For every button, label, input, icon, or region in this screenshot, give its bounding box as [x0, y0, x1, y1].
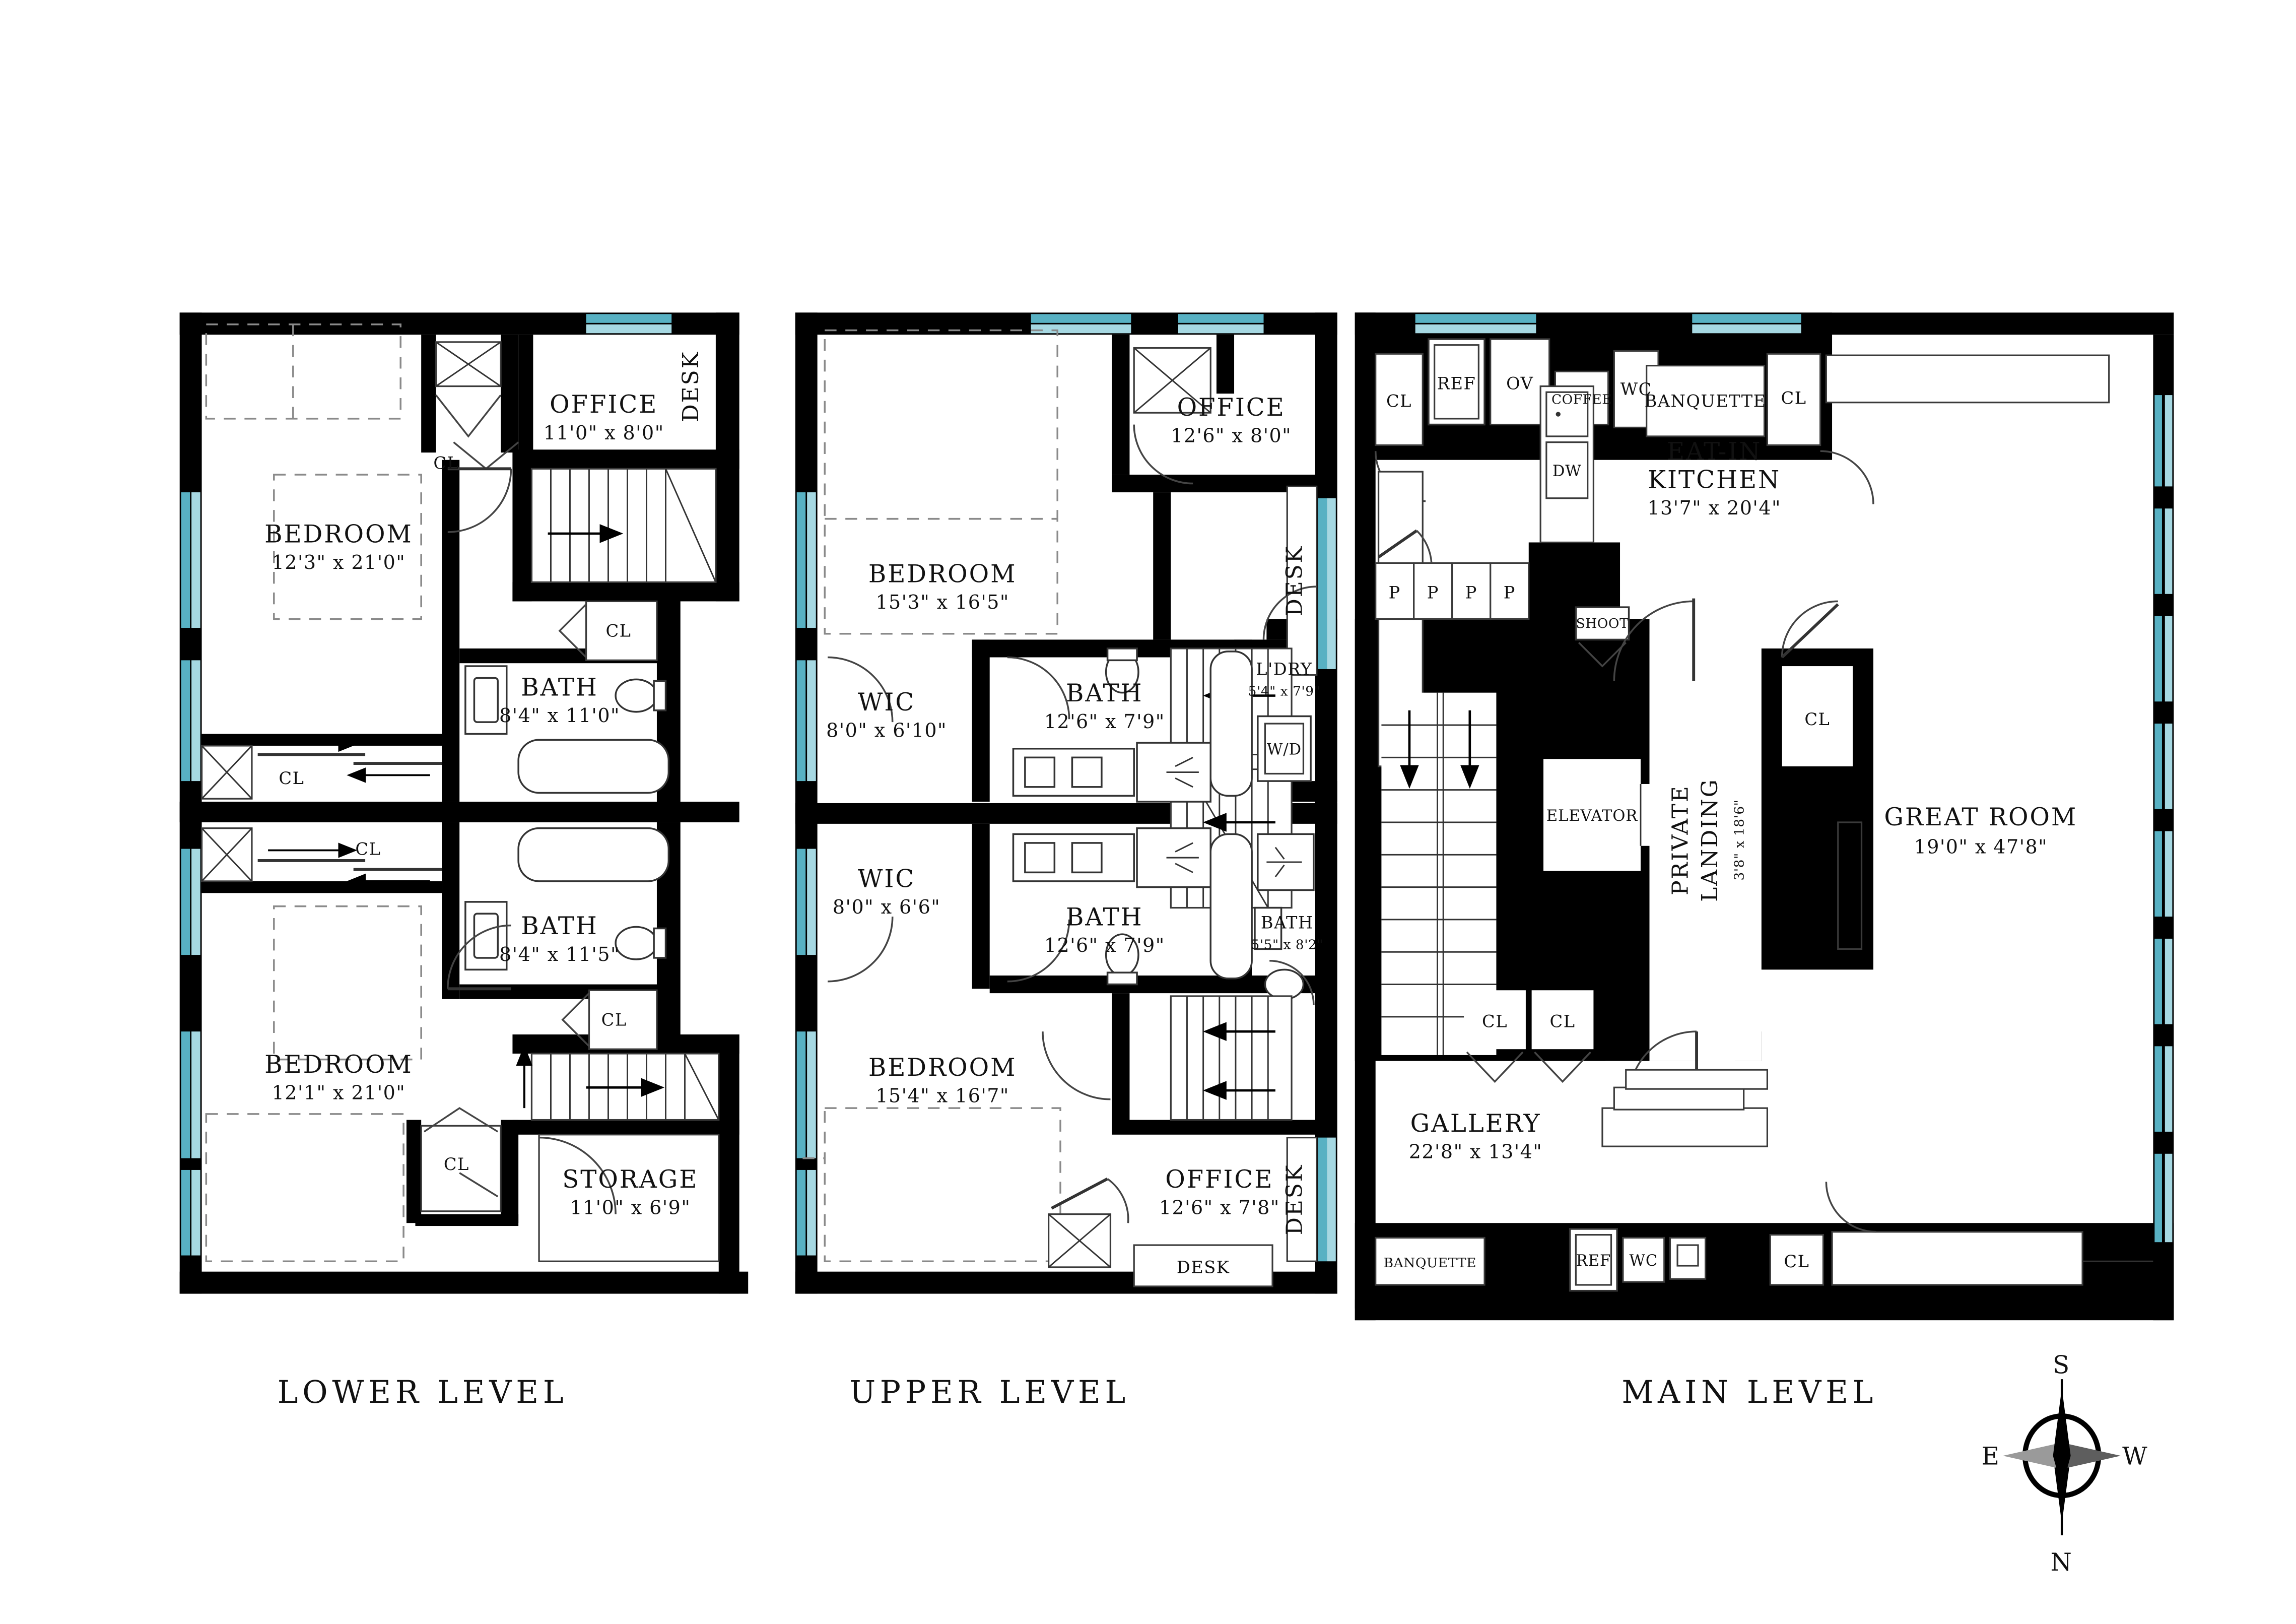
room-label-greatroom: GREAT ROOM: [1884, 803, 2077, 831]
room-dims-office1: 12'6" x 8'0": [1171, 425, 1292, 447]
ref-label: REF: [1437, 373, 1476, 393]
room-label-office2: OFFICE: [1165, 1165, 1273, 1194]
dishwasher-label: DW: [1552, 463, 1582, 480]
plan-upper-level: OFFICE 12'6" x 8'0" DESK BEDROOM 15'3" x…: [795, 312, 1337, 1293]
bed-outline: [206, 324, 421, 619]
door-arc: [828, 917, 893, 982]
pantry-label: P: [1427, 583, 1439, 603]
elevator-label: ELEVATOR: [1546, 807, 1638, 825]
room-dims-bedroom1: 12'3" x 21'0": [272, 551, 406, 573]
closet-label: CL: [444, 1154, 469, 1174]
compass-east: E: [1982, 1443, 2001, 1471]
plan-title-main: MAIN LEVEL: [1622, 1375, 1877, 1410]
oven-label: OV: [1506, 373, 1533, 393]
closet-label: CL: [355, 839, 381, 859]
room-dims-bath2: 12'6" x 7'9": [1044, 934, 1165, 956]
staircase-icon: [524, 1049, 719, 1120]
wc-label: WC: [1629, 1252, 1658, 1270]
room-label-ldry: L'DRY: [1256, 660, 1312, 679]
room-label-bath3: BATH: [1261, 913, 1314, 932]
room-dims-bedroom2: 12'1" x 21'0": [272, 1082, 406, 1104]
pantry-label: P: [1465, 583, 1477, 603]
room-label-storage: STORAGE: [562, 1165, 698, 1194]
room-dims-bath1: 8'4" x 11'0": [499, 704, 620, 727]
room-dims-bedroom2: 15'4" x 16'7": [875, 1084, 1009, 1107]
room-dims-wic1: 8'0" x 6'10": [826, 719, 947, 741]
compass-north: N: [2051, 1548, 2073, 1577]
room-label-bedroom2: BEDROOM: [868, 1054, 1017, 1082]
closet-label: CL: [433, 453, 459, 473]
floor-plan-canvas: BEDROOM 12'3" x 21'0" CL OFFICE 11'0" x …: [0, 0, 2296, 1624]
room-label-office: OFFICE: [550, 391, 658, 419]
closet-label: CL: [279, 768, 304, 788]
room-label-bath1: BATH: [521, 674, 598, 702]
landing-label-1: PRIVATE: [1668, 785, 1694, 895]
plan-title-upper: UPPER LEVEL: [849, 1375, 1130, 1410]
coffee-label: COFFEE: [1551, 393, 1612, 408]
closet-label: CL: [1804, 709, 1830, 729]
closet-label: CL: [1482, 1011, 1508, 1031]
console-table: [1602, 1070, 1767, 1146]
closet-label: CL: [605, 621, 631, 641]
staircase-icon: [531, 469, 715, 582]
x-closet-icon: [436, 342, 501, 436]
compass-rose-icon: S N E W: [1982, 1351, 2149, 1577]
shoot-label: SHOOT: [1576, 616, 1629, 631]
room-label-gallery: GALLERY: [1410, 1110, 1541, 1138]
room-label-bath2: BATH: [521, 912, 598, 940]
closet-label: CL: [1386, 391, 1412, 411]
room-dims-wic2: 8'0" x 6'6": [833, 896, 940, 918]
desk-label: DESK: [1282, 1164, 1308, 1236]
plan-lower-level: BEDROOM 12'3" x 21'0" CL OFFICE 11'0" x …: [180, 312, 749, 1293]
washer-dryer-label: W/D: [1267, 741, 1302, 758]
pantry-cabinets: [1376, 531, 1529, 619]
room-label-bath1: BATH: [1066, 679, 1143, 707]
room-label-bedroom1: BEDROOM: [868, 560, 1017, 588]
room-dims-storage: 11'0" x 6'9": [570, 1197, 691, 1219]
room-dims-gallery: 22'8" x 13'4": [1409, 1141, 1543, 1163]
desk-label: DESK: [1282, 545, 1308, 617]
room-label-bedroom2: BEDROOM: [264, 1051, 413, 1079]
room-dims-bath2: 8'4" x 11'5": [499, 943, 620, 965]
room-label-kitchen-1: EAT-IN: [1667, 438, 1762, 466]
room-dims-greatroom: 19'0" x 47'8": [1914, 835, 2048, 858]
room-dims-kitchen: 13'7" x 20'4": [1647, 497, 1781, 519]
staircase-icon: [1171, 996, 1292, 1120]
pantry-label: P: [1504, 583, 1516, 603]
room-dims-bath1: 12'6" x 7'9": [1044, 710, 1165, 733]
door-arc: [1043, 1031, 1110, 1099]
bed-outline: [802, 1108, 1060, 1261]
desk-label: DESK: [678, 351, 704, 422]
landing-label-2: LANDING: [1697, 778, 1723, 901]
plan-main-level: CL REF OV COFFEE WC BANQUETTE CL DW EAT-…: [1355, 312, 2174, 1320]
closet-label: CL: [1784, 1252, 1809, 1271]
room-label-wic1: WIC: [858, 688, 915, 717]
banquette-label: BANQUETTE: [1645, 391, 1767, 411]
room-label-wic2: WIC: [858, 865, 915, 893]
desk-label: DESK: [1177, 1258, 1230, 1277]
room-dims-ldry: 5'4" x 7'9": [1248, 684, 1321, 699]
ref-label: REF: [1576, 1252, 1611, 1270]
banquette-label: BANQUETTE: [1384, 1256, 1476, 1271]
closet-label: CL: [601, 1010, 627, 1029]
compass-south: S: [2053, 1351, 2071, 1379]
sliding-closet-icon: [202, 828, 442, 881]
room-label-office1: OFFICE: [1177, 394, 1286, 422]
landing-dims: 3'8" x 18'6": [1732, 800, 1747, 881]
room-dims-office2: 12'6" x 7'8": [1159, 1197, 1280, 1219]
closet-label: CL: [1781, 388, 1807, 408]
room-label-bath2: BATH: [1066, 903, 1143, 932]
room-label-kitchen-2: KITCHEN: [1648, 466, 1781, 494]
room-dims-bedroom1: 15'3" x 16'5": [875, 591, 1009, 613]
room-label-bedroom1: BEDROOM: [264, 520, 413, 548]
compass-west: W: [2122, 1443, 2149, 1471]
sliding-closet-icon: [202, 744, 442, 799]
room-dims-bath3: 5'5" x 8'2": [1251, 937, 1324, 952]
room-dims-office: 11'0" x 8'0": [544, 422, 664, 444]
closet-label: CL: [1550, 1011, 1576, 1031]
plan-title-lower: LOWER LEVEL: [278, 1375, 568, 1410]
pantry-label: P: [1389, 583, 1401, 603]
